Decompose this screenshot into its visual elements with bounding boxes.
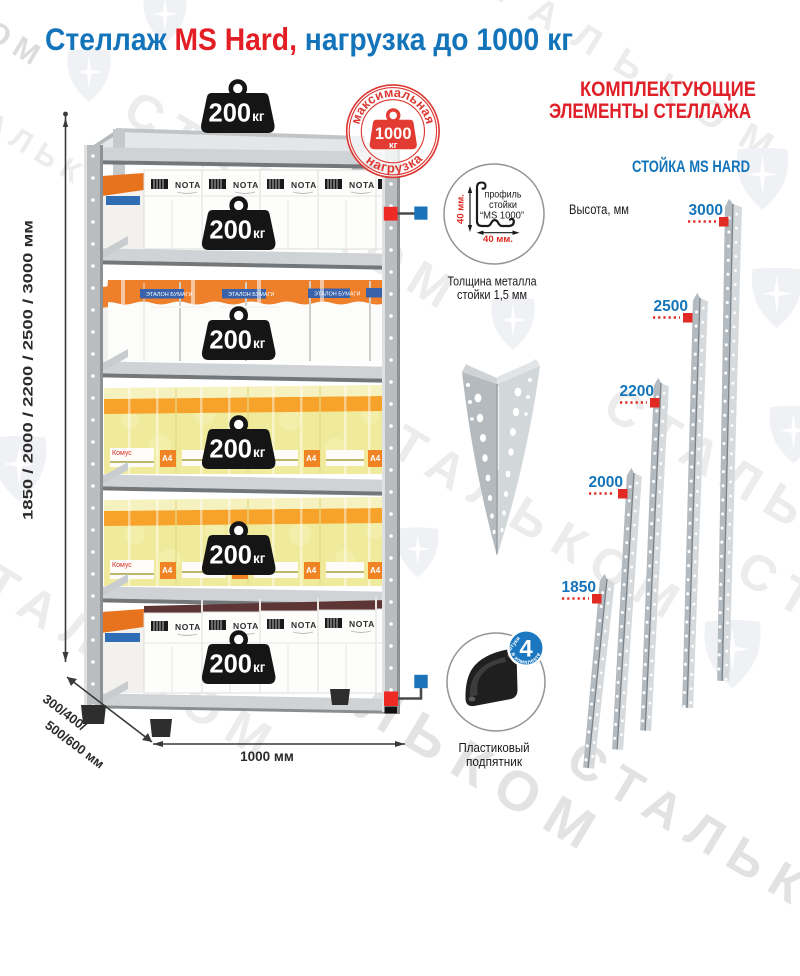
svg-text:NOTA: NOTA	[175, 180, 201, 190]
svg-text:1850 / 2000 / 2200 / 2500 / 30: 1850 / 2000 / 2200 / 2500 / 3000 мм	[21, 220, 36, 520]
svg-text:Стеллаж MS Hard, нагрузка до 1: Стеллаж MS Hard, нагрузка до 1000 кг	[45, 21, 573, 57]
svg-text:ЭТАЛОН БУМАГИ: ЭТАЛОН БУМАГИ	[146, 292, 193, 298]
svg-text:ЭТАЛОН БУМАГИ: ЭТАЛОН БУМАГИ	[228, 292, 275, 298]
svg-text:2000: 2000	[589, 474, 623, 491]
svg-text:Комус: Комус	[112, 562, 132, 569]
svg-text:A4: A4	[162, 566, 173, 575]
svg-text:40 мм.: 40 мм.	[456, 194, 467, 224]
svg-text:A4: A4	[162, 454, 173, 463]
svg-text:NOTA: NOTA	[291, 620, 317, 630]
svg-text:A4: A4	[370, 454, 381, 463]
svg-text:NOTA: NOTA	[349, 180, 375, 190]
svg-text:Пластиковый: Пластиковый	[459, 740, 530, 755]
svg-text:3000: 3000	[689, 202, 723, 219]
svg-text:Высота, мм: Высота, мм	[569, 202, 629, 217]
svg-text:A4: A4	[306, 454, 317, 463]
svg-text:NOTA: NOTA	[175, 622, 201, 632]
svg-text:стойки 1,5 мм: стойки 1,5 мм	[457, 287, 527, 302]
svg-text:1850: 1850	[562, 579, 596, 596]
svg-text:профиль: профиль	[485, 189, 522, 201]
svg-text:“MS 1000”: “MS 1000”	[480, 210, 524, 221]
svg-text:Комус: Комус	[112, 450, 132, 457]
svg-text:2200: 2200	[620, 383, 654, 400]
svg-text:NOTA: NOTA	[349, 619, 375, 629]
svg-text:A4: A4	[370, 566, 381, 575]
svg-text:2500: 2500	[654, 298, 688, 315]
svg-text:СТОЙКА MS HARD: СТОЙКА MS HARD	[632, 157, 750, 176]
svg-text:NOTA: NOTA	[233, 180, 259, 190]
svg-text:40 мм.: 40 мм.	[483, 234, 513, 245]
svg-text:1000 мм: 1000 мм	[240, 749, 294, 764]
svg-text:кг: кг	[389, 140, 398, 150]
svg-text:подпятник: подпятник	[466, 754, 522, 769]
svg-text:NOTA: NOTA	[291, 180, 317, 190]
svg-text:ЭЛЕМЕНТЫ СТЕЛЛАЖА: ЭЛЕМЕНТЫ СТЕЛЛАЖА	[549, 99, 751, 123]
svg-text:NOTA: NOTA	[233, 621, 259, 631]
svg-text:КОМПЛЕКТУЮЩИЕ: КОМПЛЕКТУЮЩИЕ	[580, 77, 756, 101]
svg-text:A4: A4	[306, 566, 317, 575]
